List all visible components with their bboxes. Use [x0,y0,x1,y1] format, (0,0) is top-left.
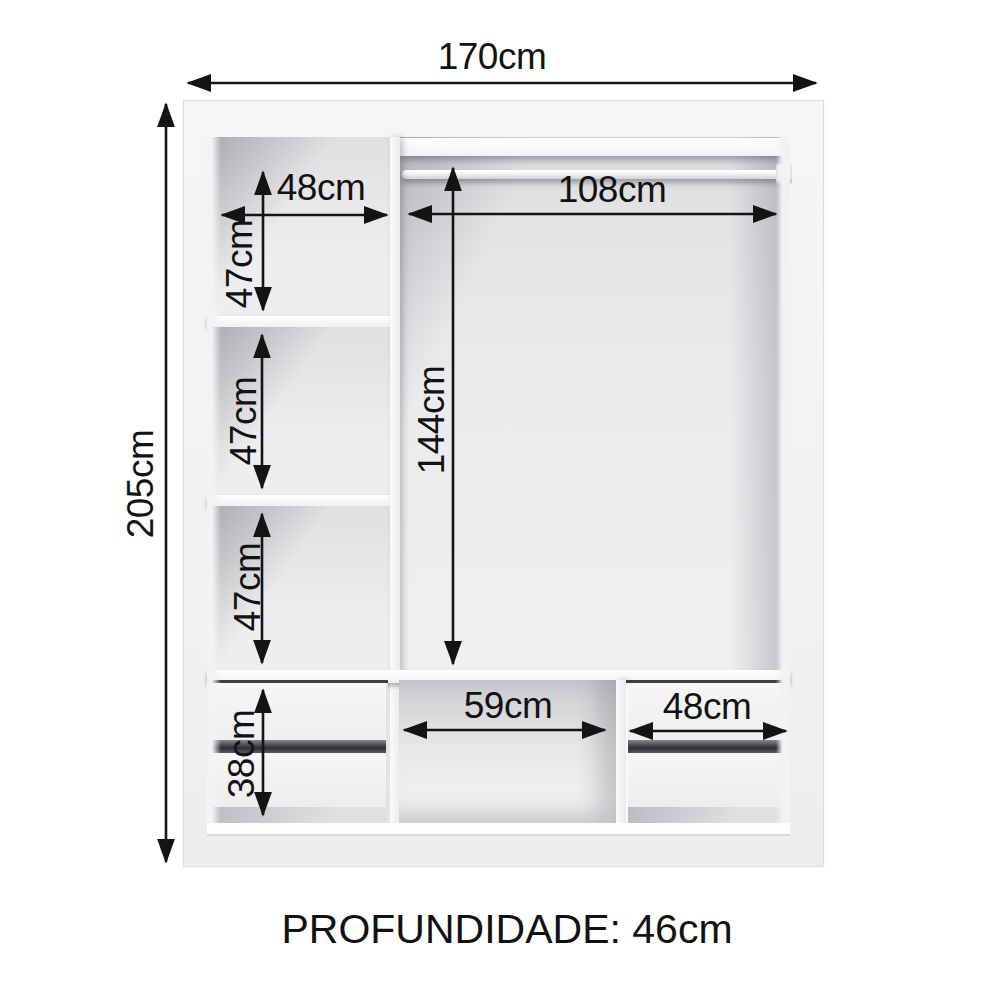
dim-label-left-compartment-2: 47cm [225,377,262,465]
shelf-1 [207,316,392,327]
drawer-gap [628,740,788,753]
right-sidewall-edge [776,137,790,823]
dim-label-total-height: 205cm [122,430,159,539]
hanging-section [400,137,783,670]
dim-label-total-width: 170cm [438,38,547,75]
drawer-recess-shadow [628,807,788,823]
depth-note: PROFUNDIDADE: 46cm [281,906,732,953]
base-panel [207,823,790,834]
shelf-2 [207,495,392,506]
niche-divider [616,680,626,823]
dim-label-left-compartment-1: 47cm [221,220,258,308]
dim-label-top-left-shelf-width: 48cm [277,169,365,206]
drawer-front-bottom [628,753,788,807]
dim-label-drawer-height: 38cm [223,710,260,798]
top-shelf-right [400,138,783,156]
drawer-recess-shadow [211,807,386,823]
dim-label-center-niche-width: 59cm [464,687,552,724]
dim-label-hanging-width: 108cm [558,171,667,208]
dim-label-hanging-height: 144cm [413,366,450,475]
dim-label-right-drawers-width: 48cm [663,688,751,725]
wardrobe-dimension-diagram: 170cm 205cm 48cm 47cm 47cm 47cm 108cm 14… [0,0,1000,1000]
dim-label-left-compartment-3: 47cm [229,543,266,631]
